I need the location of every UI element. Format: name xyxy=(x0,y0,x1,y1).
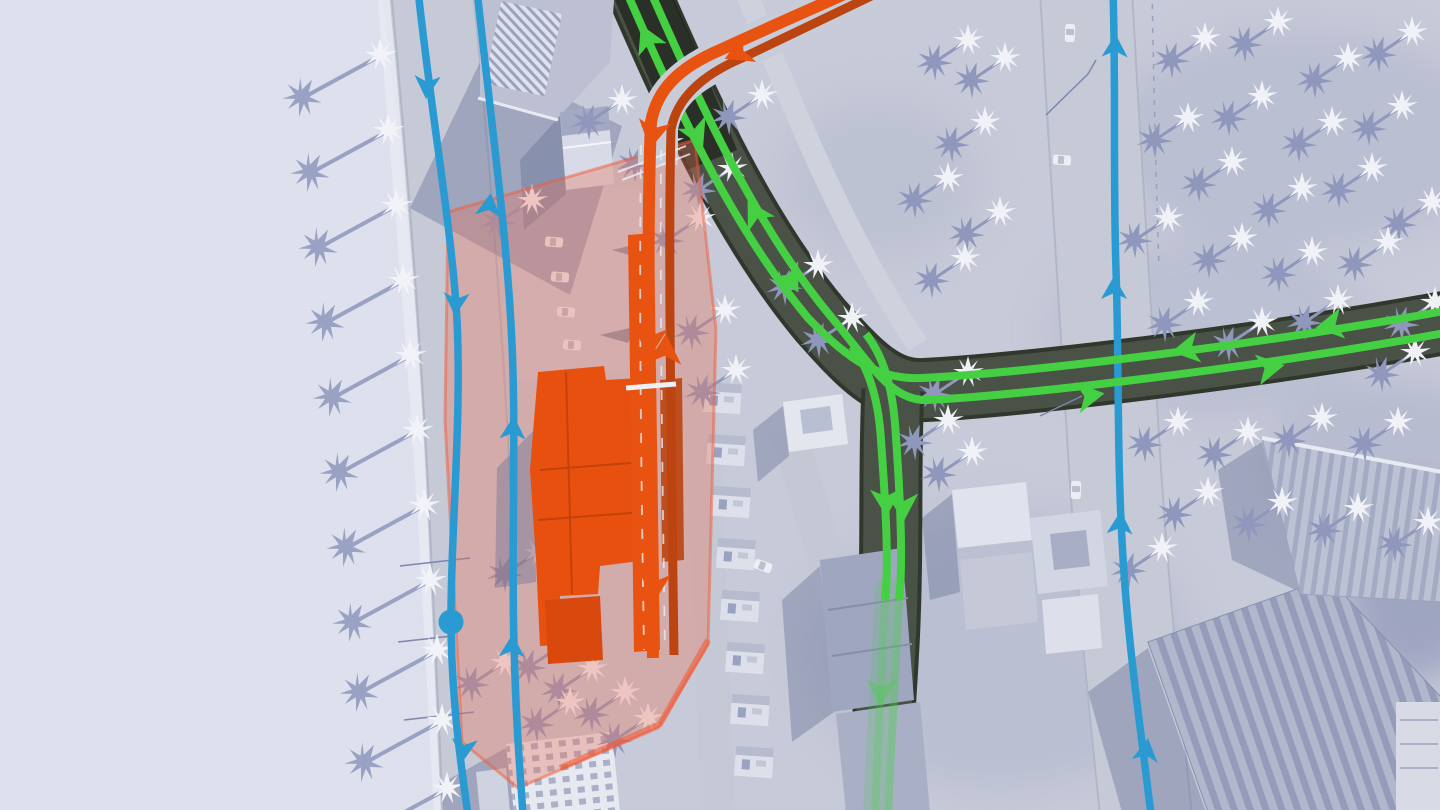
transit-stop-marker[interactable] xyxy=(439,610,464,635)
game-viewport[interactable] xyxy=(0,0,1440,810)
corner-tower[interactable] xyxy=(1396,702,1440,810)
moving-car xyxy=(1065,24,1076,42)
moving-car xyxy=(1071,481,1082,499)
parked-car xyxy=(1053,154,1072,165)
station-platform-south xyxy=(545,596,603,664)
city-map[interactable] xyxy=(0,0,1440,810)
white-building-a[interactable] xyxy=(783,394,848,452)
